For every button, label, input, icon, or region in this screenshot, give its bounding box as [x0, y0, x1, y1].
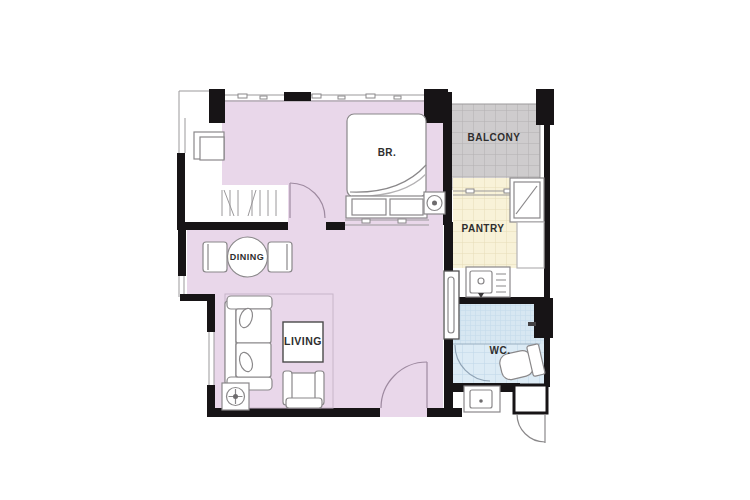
balcony-label: BALCONY — [468, 132, 521, 143]
wc-sink-icon — [464, 386, 500, 412]
dining-chair-left — [203, 242, 227, 272]
wall-pillar-top-right — [536, 89, 554, 125]
shower-drain-icon — [528, 322, 536, 326]
service-door-arc — [517, 414, 545, 443]
wall-right-thin — [544, 123, 550, 299]
wall-living-left-lower — [207, 385, 215, 412]
wall-left-mid — [178, 230, 186, 276]
wall-bedroom-bottom-right — [326, 222, 345, 230]
dining-label: DINING — [230, 252, 265, 262]
sofa-arm-top — [227, 296, 272, 309]
wall-hall-right-upper — [444, 222, 453, 272]
bed — [346, 114, 427, 218]
bedroom-label: BR. — [378, 147, 397, 158]
floor-plan-page: BR. BALCONY PANTRY DINING LIVING WC. — [0, 0, 750, 500]
pantry-label: PANTRY — [462, 223, 505, 234]
entry-threshold — [380, 408, 427, 417]
bed-pillow-right — [390, 199, 423, 215]
wall-living-left-upper — [207, 296, 215, 332]
balcony-tile-grid — [448, 104, 540, 190]
kitchen-sink-icon — [466, 267, 510, 298]
bathroom-door-panel — [444, 271, 459, 339]
wall-pillar-top-left — [209, 89, 225, 123]
armchair-back — [286, 398, 322, 408]
wc-label: WC. — [490, 345, 511, 356]
shaft-box — [514, 385, 547, 413]
wall-bedroom-bottom-left — [179, 222, 288, 230]
wall-left-upper — [177, 153, 185, 230]
wall-top-segment — [284, 92, 311, 101]
wall-right-lower — [544, 338, 550, 387]
floor-plan: BR. BALCONY PANTRY DINING LIVING WC. — [0, 0, 750, 500]
fan-unit-icon — [424, 192, 445, 214]
floor-lamp-icon — [222, 383, 249, 410]
bed-pillow-left — [352, 199, 386, 215]
sofa-back — [225, 301, 236, 385]
armchair-seat — [291, 373, 316, 400]
sofa — [225, 296, 272, 390]
wall-pantry-wc-divider — [452, 297, 548, 304]
armchair — [283, 371, 324, 408]
wall-hall-right-lower — [444, 338, 453, 412]
living-label: LIVING — [284, 335, 322, 347]
dining-chair-right — [268, 242, 292, 272]
closet-cabinet — [194, 132, 224, 160]
